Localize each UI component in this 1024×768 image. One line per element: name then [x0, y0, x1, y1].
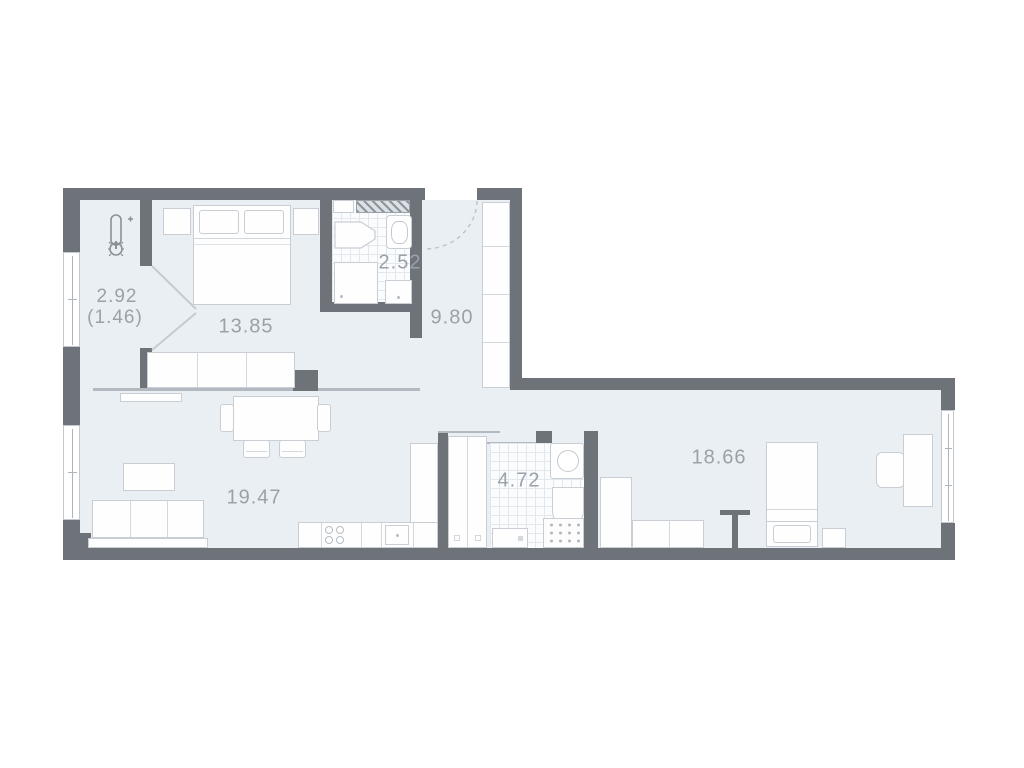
floor-plan: 2.92 (1.46) 13.85 2.52 9.80 19.47 4.72 1… [0, 0, 1024, 768]
label-loggia-area-reduced: (1.46) [87, 307, 143, 329]
thermometer-icon [106, 213, 134, 259]
label-bedroom-second-area: 18.66 [691, 447, 746, 470]
kitchen-sink [385, 525, 409, 545]
desk [903, 434, 933, 507]
sofa-back [88, 538, 208, 548]
dining-chair-right [317, 404, 331, 432]
tv-console [120, 393, 182, 402]
wardrobe-bedroom [147, 352, 295, 388]
pillow [773, 525, 811, 543]
cabinet-tall [600, 477, 632, 548]
label-living-kitchen-area: 19.47 [226, 487, 281, 510]
nightstand-second [822, 528, 846, 548]
bed-main [193, 205, 291, 305]
coffee-table [123, 463, 175, 491]
cabinet-low [632, 520, 704, 548]
washer-large-bath [492, 528, 528, 548]
label-bathroom-large-area: 4.72 [498, 470, 541, 493]
closet-doors [448, 436, 487, 548]
label-bathroom-small-area: 2.52 [379, 252, 422, 275]
nightstand-left [163, 208, 191, 235]
dining-chair-bottom-1 [243, 440, 270, 458]
pillow [244, 210, 284, 234]
bed-second [766, 442, 818, 522]
label-loggia-area: 2.92 [97, 286, 138, 308]
dining-chair-left [220, 404, 234, 432]
vent-shaft [356, 200, 410, 213]
sink-small-bath [386, 215, 412, 249]
fridge-column [410, 443, 438, 523]
shower-small-bath [334, 262, 378, 304]
sofa-seat [92, 500, 204, 538]
kitchen-counter [298, 522, 438, 548]
desk-chair [876, 452, 905, 488]
stove [323, 524, 357, 546]
nightstand-right [293, 208, 319, 235]
label-bedroom-area: 13.85 [218, 316, 273, 339]
dining-chair-bottom-2 [279, 440, 306, 458]
partition-stem [732, 515, 738, 548]
pillow [199, 210, 239, 234]
shower-tray [543, 518, 584, 548]
sink-large-bath [550, 443, 584, 479]
vent-box [333, 200, 354, 213]
washer-small-bath [385, 280, 412, 304]
dining-table [233, 396, 319, 441]
label-hallway-area: 9.80 [431, 307, 474, 330]
toilet-small-bath [334, 218, 378, 252]
bed-second-pillow-section [766, 521, 818, 547]
wardrobe-hallway [482, 202, 510, 388]
